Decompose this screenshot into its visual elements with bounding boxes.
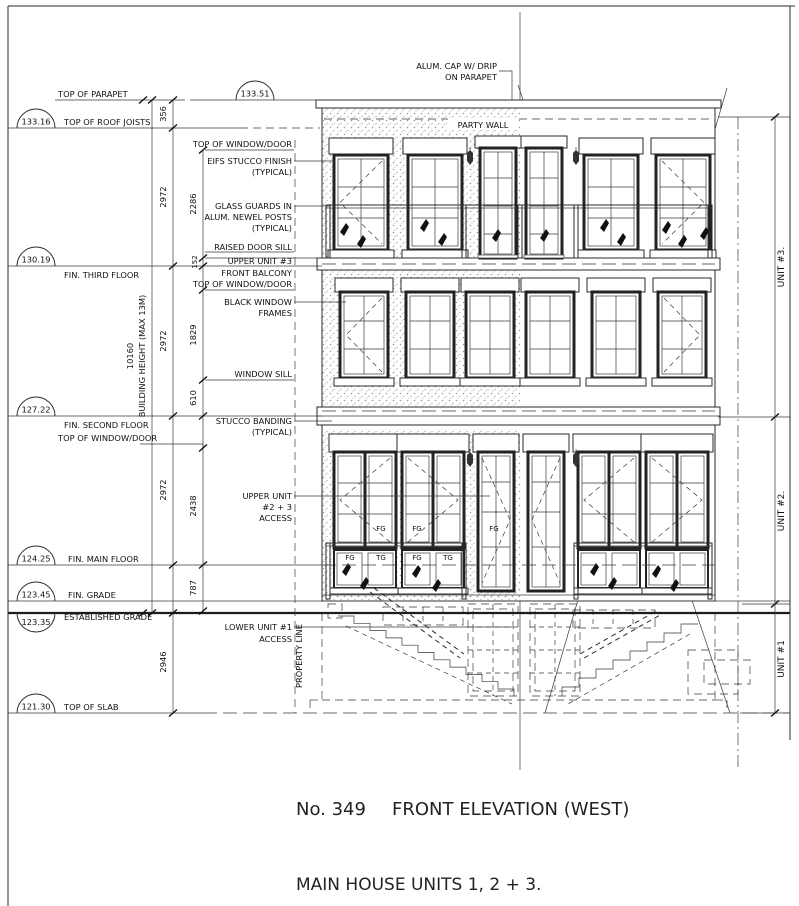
third-floor-window <box>578 138 644 258</box>
note-raised-door-sill: RAISED DOOR SILL <box>214 242 292 252</box>
dim-grade-to-slab: 2946 <box>158 651 168 672</box>
drawing-subtitle: MAIN HOUSE UNITS 1, 2 + 3. <box>296 875 541 895</box>
note-upper-access-2: #2 + 3 <box>262 502 292 512</box>
note-lower-access-1: LOWER UNIT #1 <box>225 622 292 632</box>
level-value-roof-joists: 133.16 <box>21 117 50 127</box>
dim-building-height-note: BUILDING HEIGHT (MAX 13M) <box>137 295 147 418</box>
label-fin-main-floor: FIN. MAIN FLOOR <box>68 554 139 564</box>
second-floor-window <box>460 278 520 386</box>
note-stucco-banding-typical: (TYPICAL) <box>252 427 292 437</box>
second-floor-window <box>334 278 394 386</box>
dim-window-head-second: 1829 <box>188 324 198 345</box>
second-floor-window <box>520 278 580 386</box>
level-value-main-floor: 124.25 <box>21 554 50 564</box>
main-floor-window-assembly <box>397 434 469 594</box>
below-grade-dashed-work <box>310 588 750 713</box>
note-glass-guards-2: ALUM. NEWEL POSTS <box>204 212 292 222</box>
glazing-fg: FG <box>412 525 421 533</box>
main-floor-entry-door <box>473 434 519 591</box>
level-value-second-floor: 127.22 <box>21 405 50 415</box>
label-unit-3: UNIT #3. <box>777 247 787 287</box>
dim-sill-second: 610 <box>188 390 198 406</box>
drawing-number: No. 349 <box>296 799 366 820</box>
note-eifs: EIFS STUCCO FINISH <box>207 156 292 166</box>
note-lower-access-2: ACCESS <box>259 634 292 644</box>
label-top-of-parapet: TOP OF PARAPET <box>57 89 129 99</box>
dim-floor3-height: 2972 <box>158 186 168 207</box>
main-floor-window-assembly <box>573 434 645 594</box>
elevation-drawing: 133.51 133.16 130.19 127.22 124.25 123.4… <box>0 0 799 906</box>
label-property-line: PROPERTY LINE <box>294 624 304 688</box>
note-alum-cap-2: ON PARAPET <box>445 72 498 82</box>
note-black-window-2: FRAMES <box>258 308 292 318</box>
note-window-sill: WINDOW SILL <box>234 369 292 379</box>
third-floor-window <box>402 138 468 258</box>
title-block: No. 349 FRONT ELEVATION (WEST) MAIN HOUS… <box>296 799 629 895</box>
main-floor-window-assembly <box>329 434 401 594</box>
dimension-chains: 356 2972 2972 2972 2946 2286 152 1829 61… <box>125 100 322 713</box>
basement-stair <box>562 624 698 696</box>
level-value-third-floor: 130.19 <box>21 255 50 265</box>
third-floor-balcony-door <box>475 136 521 258</box>
label-fin-second-floor: FIN. SECOND FLOOR <box>64 420 149 430</box>
dim-window-head-main: 2438 <box>188 495 198 516</box>
level-value-top-of-slab: 121.30 <box>21 702 50 712</box>
dim-raised-sill: 152 <box>191 255 199 268</box>
main-floor-window-assembly <box>641 434 713 594</box>
second-floor-window <box>652 278 712 386</box>
dim-window-head-third: 2286 <box>188 193 198 214</box>
label-fin-grade: FIN. GRADE <box>68 590 116 600</box>
note-black-window-1: BLACK WINDOW <box>224 297 292 307</box>
second-floor-window <box>586 278 646 386</box>
dim-floor2-height: 2972 <box>158 330 168 351</box>
note-stucco-banding: STUCCO BANDING <box>216 416 292 426</box>
glazing-fg: FG <box>412 554 421 562</box>
level-value-parapet: 133.51 <box>240 89 269 99</box>
unit-extents: UNIT #3. UNIT #2. UNIT #1 <box>718 117 790 770</box>
label-unit-1: UNIT #1 <box>777 640 787 678</box>
label-unit-2: UNIT #2. <box>777 491 787 531</box>
note-party-wall: PARTY WALL <box>458 120 509 130</box>
glazing-fg: FG <box>376 525 385 533</box>
glazing-tg: TG <box>375 554 386 562</box>
level-value-established-grade: 123.35 <box>21 617 50 627</box>
glazing-fg: FG <box>489 525 498 533</box>
drawing-title: FRONT ELEVATION (WEST) <box>392 799 629 820</box>
label-top-of-roof-joists: TOP OF ROOF JOISTS <box>63 117 150 127</box>
drawing-sheet: 133.51 133.16 130.19 127.22 124.25 123.4… <box>0 0 799 906</box>
dim-main-to-grade: 787 <box>188 580 198 596</box>
basement-stair <box>338 616 514 696</box>
second-floor-window <box>400 278 460 386</box>
dim-floor1-height: 2972 <box>158 479 168 500</box>
label-fin-third-floor: FIN. THIRD FLOOR <box>64 270 139 280</box>
note-glass-guards-typical: (TYPICAL) <box>252 223 292 233</box>
label-established-grade: ESTABLISHED GRADE <box>64 612 152 622</box>
main-floor-entry-door <box>523 434 569 591</box>
note-upper-access-3: ACCESS <box>259 513 292 523</box>
note-top-of-window-door-1: TOP OF WINDOW/DOOR <box>57 433 157 443</box>
label-top-of-slab: TOP OF SLAB <box>63 702 119 712</box>
note-eifs-typical: (TYPICAL) <box>252 167 292 177</box>
level-value-fin-grade: 123.45 <box>21 590 50 600</box>
note-glass-guards-1: GLASS GUARDS IN <box>215 201 292 211</box>
note-upper-access-1: UPPER UNIT <box>242 491 292 501</box>
glazing-fg: FG <box>345 554 354 562</box>
note-front-balcony: FRONT BALCONY <box>221 268 293 278</box>
note-upper-unit-3: UPPER UNIT #3 <box>228 256 292 266</box>
glazing-tg: TG <box>442 554 453 562</box>
note-alum-cap-1: ALUM. CAP W/ DRIP <box>416 61 497 71</box>
dim-building-height: 10160 <box>125 343 135 369</box>
dim-parapet: 356 <box>158 106 168 122</box>
